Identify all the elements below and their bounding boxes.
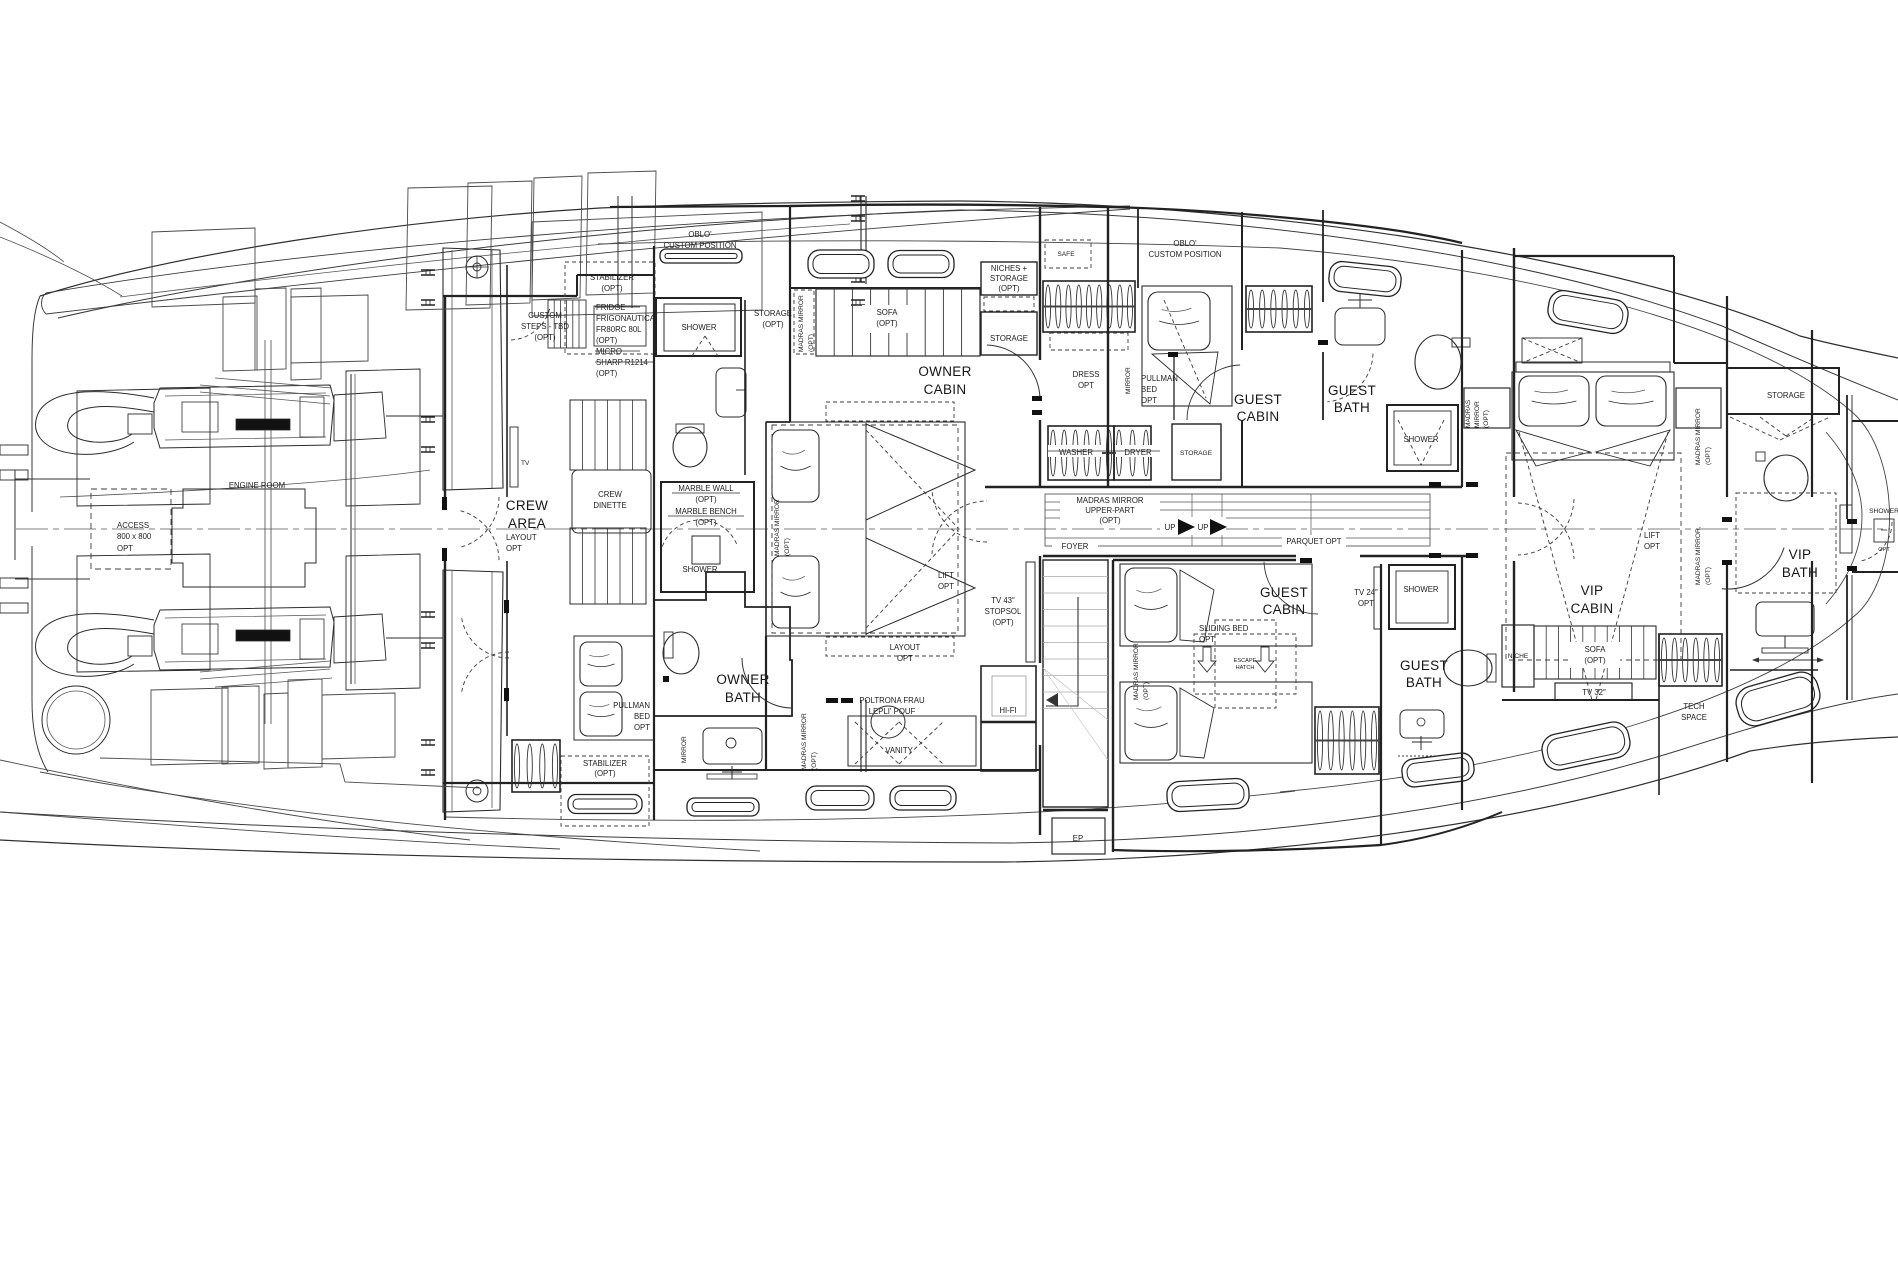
svg-text:CABIN: CABIN [924,382,967,397]
svg-text:STABILIZER: STABILIZER [583,759,627,768]
svg-text:UPPER-PART: UPPER-PART [1085,506,1135,515]
svg-text:TV 32″: TV 32″ [1582,688,1606,697]
svg-text:MADRAS MIRROR: MADRAS MIRROR [1133,643,1140,700]
svg-text:LIFT: LIFT [1644,531,1660,540]
svg-text:OPT: OPT [634,723,650,732]
svg-text:GUEST: GUEST [1234,392,1282,407]
svg-text:STORAGE: STORAGE [1767,391,1805,400]
svg-text:(OPT): (OPT) [695,495,717,504]
svg-text:(OPT): (OPT) [784,538,791,556]
svg-text:OWNER: OWNER [918,364,971,379]
svg-text:CABIN: CABIN [1263,602,1306,617]
svg-text:AREA: AREA [508,516,546,531]
svg-text:FRIGONAUTICA: FRIGONAUTICA [596,314,656,323]
svg-text:(OPT): (OPT) [1143,682,1150,700]
svg-text:EP: EP [1073,834,1083,843]
svg-text:STORAGE: STORAGE [1180,450,1213,457]
svg-text:(OPT): (OPT) [594,769,616,778]
svg-text:VIP: VIP [1581,583,1604,598]
svg-text:STORAGE: STORAGE [990,274,1028,283]
svg-text:OWNER: OWNER [716,672,769,687]
svg-text:SHOWER: SHOWER [1869,508,1898,515]
svg-text:CREW: CREW [598,490,622,499]
svg-text:SAFE: SAFE [1057,251,1075,258]
svg-text:(OPT): (OPT) [1099,516,1121,525]
svg-text:FOYER: FOYER [1062,542,1089,551]
svg-text:LIFT: LIFT [938,571,954,580]
svg-text:(OPT): (OPT) [695,518,717,527]
svg-text:(OPT): (OPT) [534,333,556,342]
svg-text:BED: BED [1141,385,1157,394]
svg-text:MADRAS MIRROR: MADRAS MIRROR [801,713,808,770]
svg-text:BATH: BATH [1406,675,1442,690]
svg-text:MIRROR: MIRROR [681,736,688,763]
svg-text:LAYOUT: LAYOUT [506,533,537,542]
svg-text:MIRROR: MIRROR [1474,401,1481,428]
svg-text:GUEST: GUEST [1328,383,1376,398]
svg-text:MIRROR: MIRROR [1125,367,1132,394]
svg-text:OPT: OPT [1644,542,1660,551]
svg-text:(OPT): (OPT) [601,284,623,293]
svg-text:OPT: OPT [1358,599,1374,608]
svg-text:SLIDING BED: SLIDING BED [1199,624,1249,633]
svg-text:VIP: VIP [1789,547,1812,562]
svg-text:DINETTE: DINETTE [593,501,626,510]
svg-text:(OPT): (OPT) [1705,447,1712,465]
svg-text:PARQUET OPT: PARQUET OPT [1286,537,1341,546]
svg-text:OPT: OPT [897,654,913,663]
svg-text:OPT: OPT [1078,381,1094,390]
svg-text:MICRO: MICRO [596,347,622,356]
svg-text:GUEST: GUEST [1260,585,1308,600]
svg-text:MARBLE BENCH: MARBLE BENCH [675,507,737,516]
svg-text:(OPT): (OPT) [876,319,898,328]
svg-text:CUSTOM: CUSTOM [528,311,562,320]
svg-text:STORAGE: STORAGE [990,334,1028,343]
svg-text:MADRAS MIRROR: MADRAS MIRROR [1076,496,1144,505]
svg-text:FR80RC 80L: FR80RC 80L [596,325,642,334]
svg-text:ENGINE ROOM: ENGINE ROOM [229,481,285,490]
svg-text:SOFA: SOFA [877,308,899,317]
svg-text:TV 43″: TV 43″ [991,596,1015,605]
svg-text:OPT: OPT [1141,396,1157,405]
svg-text:MARBLE WALL: MARBLE WALL [678,484,734,493]
svg-text:MADRAS MIRROR: MADRAS MIRROR [798,295,805,352]
svg-text:FRIDGE: FRIDGE [596,303,625,312]
svg-text:DRESS: DRESS [1073,370,1100,379]
svg-text:CABIN: CABIN [1237,409,1280,424]
svg-text:800 x 800: 800 x 800 [117,532,152,541]
svg-text:SPACE: SPACE [1681,713,1707,722]
svg-text:(OPT): (OPT) [1705,567,1712,585]
svg-text:LAYOUT: LAYOUT [890,643,921,652]
svg-text:SHARP R1214: SHARP R1214 [596,358,649,367]
svg-text:OPT: OPT [1199,635,1215,644]
svg-text:OPT: OPT [938,582,954,591]
svg-text:STABILIZER: STABILIZER [590,273,634,282]
svg-text:MADRAS MIRROR,: MADRAS MIRROR, [1695,526,1702,585]
svg-text:STORAGE: STORAGE [754,309,792,318]
svg-text:TECH: TECH [1683,702,1704,711]
svg-text:ESCAPE: ESCAPE [1234,658,1257,664]
svg-text:OPT: OPT [117,544,133,553]
svg-text:NICHE: NICHE [1508,653,1529,660]
svg-text:(OPT): (OPT) [808,334,815,352]
svg-text:STEPS - TBD: STEPS - TBD [521,322,569,331]
svg-text:MADRAS MIRROR: MADRAS MIRROR [774,499,781,556]
svg-text:ACCESS: ACCESS [117,521,149,530]
svg-text:WASHER: WASHER [1059,448,1093,457]
svg-text:(OPT): (OPT) [811,752,818,770]
svg-text:(OPT): (OPT) [992,618,1014,627]
svg-text:UP: UP [1165,523,1176,532]
svg-text:TV: TV [521,460,530,467]
svg-text:NICHES +: NICHES + [991,264,1028,273]
svg-text:MADRAS MIRROR: MADRAS MIRROR [1695,408,1702,465]
svg-text:HI-FI: HI-FI [999,706,1016,715]
svg-text:(OPT): (OPT) [1584,656,1606,665]
svg-text:PULLMAN: PULLMAN [1141,374,1178,383]
svg-text:POLTRONA FRAU: POLTRONA FRAU [859,696,925,705]
svg-text:(OPT): (OPT) [1483,410,1490,428]
svg-text:OBLO': OBLO' [1173,239,1197,248]
svg-text:PULLMAN: PULLMAN [613,701,650,710]
svg-text:SHOWER: SHOWER [681,323,716,332]
svg-text:BED: BED [634,712,650,721]
svg-text:DRYER: DRYER [1124,448,1152,457]
svg-text:CABIN: CABIN [1571,601,1614,616]
svg-text:CREW: CREW [506,498,548,513]
svg-text:(OPT): (OPT) [596,369,618,378]
svg-text:HATCH: HATCH [1236,665,1255,671]
svg-text:OPT: OPT [506,544,522,553]
svg-text:STOPSOL: STOPSOL [985,607,1022,616]
svg-text:SOFA: SOFA [1585,645,1607,654]
svg-text:MADRAS: MADRAS [1465,399,1472,428]
svg-text:(OPT): (OPT) [596,336,618,345]
svg-text:CUSTOM POSITION: CUSTOM POSITION [1148,250,1221,259]
svg-text:GUEST: GUEST [1400,658,1448,673]
svg-text:UP: UP [1198,523,1209,532]
svg-text:(OPT): (OPT) [998,284,1020,293]
svg-text:SHOWER: SHOWER [1403,585,1438,594]
svg-text:(OPT): (OPT) [762,320,784,329]
svg-text:BATH: BATH [1334,400,1370,415]
svg-text:OBLO': OBLO' [688,230,712,239]
